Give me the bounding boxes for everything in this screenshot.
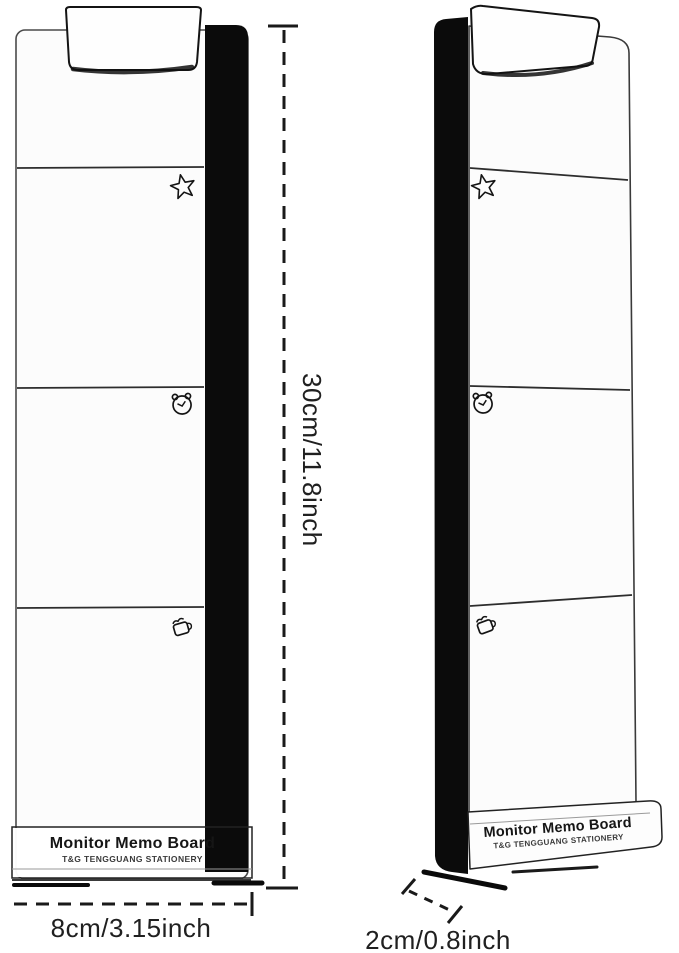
front-divider-line-3: [17, 607, 204, 608]
side-board-panel: [469, 26, 636, 814]
height-dimension-label: 30cm/11.8inch: [296, 373, 327, 547]
product-diagram: 30cm/11.8inch 8cm/3.15inch 2cm/0.8inch M…: [0, 0, 679, 953]
depth-dimension-line: [402, 879, 462, 923]
front-label-subtitle: T&G TENGGUANG STATIONERY: [40, 854, 225, 864]
side-black-strip: [434, 17, 468, 874]
height-dimension-line: [266, 26, 298, 888]
width-dimension-label: 8cm/3.15inch: [46, 913, 216, 944]
front-black-strip: [205, 25, 248, 872]
side-tray-shadow-right: [513, 867, 597, 872]
side-tray-shadow-left: [424, 872, 505, 888]
front-clip: [66, 7, 201, 70]
depth-dimension-label: 2cm/0.8inch: [358, 925, 518, 953]
front-tray-label: Monitor Memo Board T&G TENGGUANG STATION…: [40, 835, 225, 864]
front-divider-line-2: [17, 387, 204, 388]
memo-board-illustration: [0, 0, 679, 953]
front-divider-line-1: [17, 167, 204, 168]
front-label-title: Monitor Memo Board: [40, 835, 225, 853]
side-clip: [471, 6, 599, 74]
